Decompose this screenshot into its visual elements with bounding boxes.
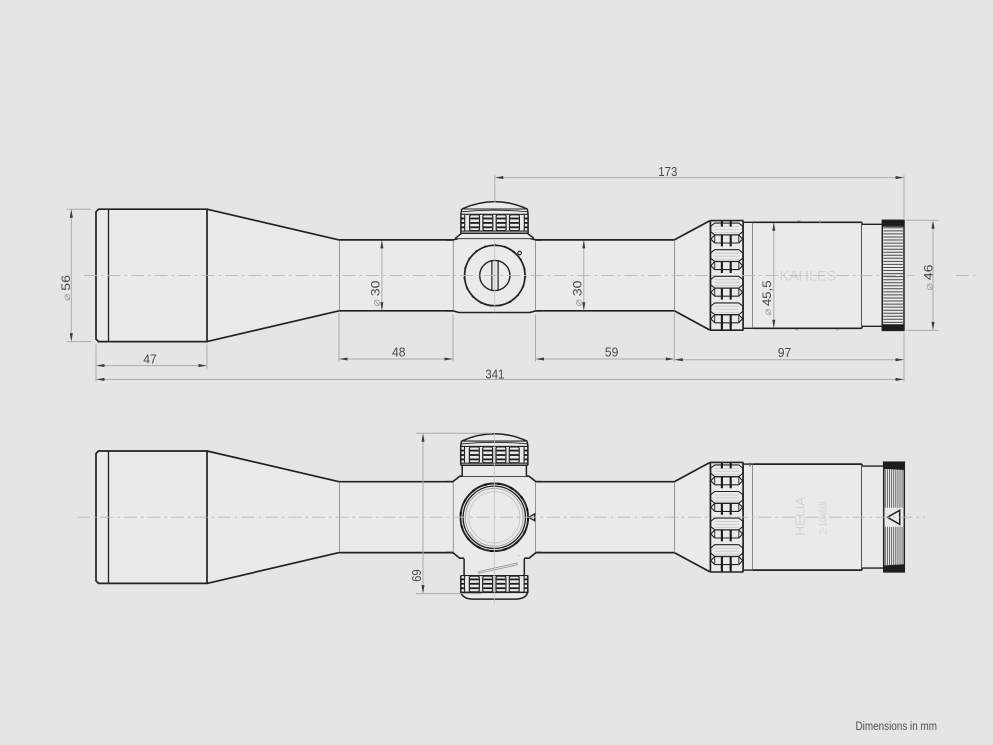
svg-text:HELIA: HELIA xyxy=(793,496,808,535)
svg-text:2-10x50i: 2-10x50i xyxy=(818,501,830,534)
svg-text:173: 173 xyxy=(658,165,677,179)
svg-text:⌀ 45,5: ⌀ 45,5 xyxy=(760,280,774,315)
svg-text:47: 47 xyxy=(143,352,157,366)
svg-text:48: 48 xyxy=(392,345,406,359)
svg-text:97: 97 xyxy=(778,346,792,360)
svg-text:KAHLES: KAHLES xyxy=(780,269,837,284)
svg-text:59: 59 xyxy=(605,345,619,359)
svg-text:⌀ 56: ⌀ 56 xyxy=(59,275,73,301)
svg-text:⌀ 30: ⌀ 30 xyxy=(571,280,585,306)
svg-text:69: 69 xyxy=(410,569,424,582)
svg-text:Dimensions in mm: Dimensions in mm xyxy=(856,721,938,733)
svg-text:⌀ 30: ⌀ 30 xyxy=(368,280,382,306)
svg-text:341: 341 xyxy=(485,367,504,381)
svg-text:⌀ 46: ⌀ 46 xyxy=(921,264,935,290)
